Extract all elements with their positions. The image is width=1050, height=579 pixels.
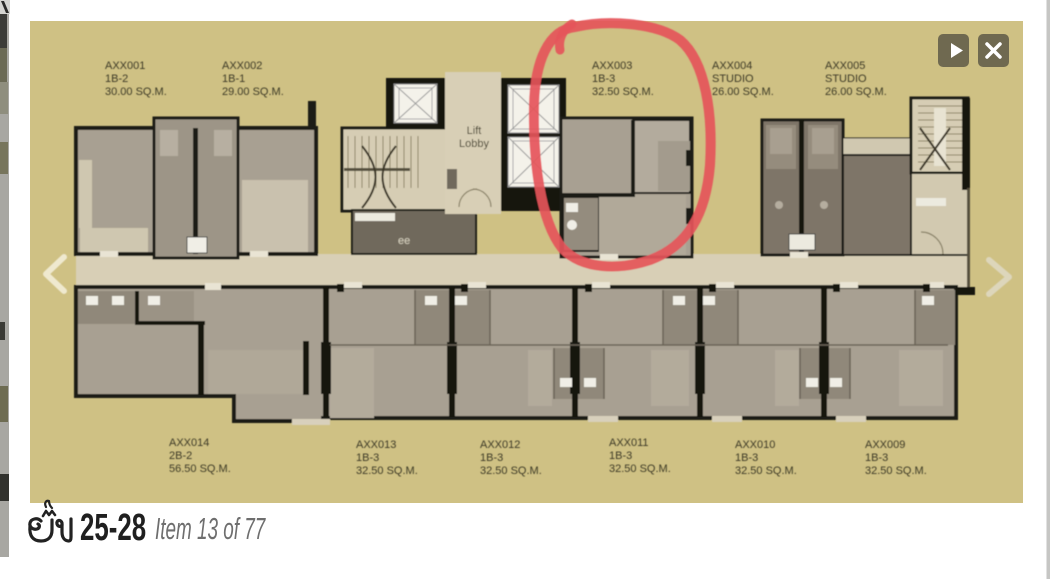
svg-text:25-28: 25-28 bbox=[80, 506, 146, 548]
svg-text:AXX005: AXX005 bbox=[825, 60, 865, 72]
svg-text:AXX002: AXX002 bbox=[222, 60, 262, 72]
svg-text:29.00 SQ.M.: 29.00 SQ.M. bbox=[222, 86, 284, 98]
svg-text:32.50 SQ.M.: 32.50 SQ.M. bbox=[592, 86, 654, 98]
svg-text:AXX009: AXX009 bbox=[865, 439, 905, 451]
svg-text:32.50 SQ.M.: 32.50 SQ.M. bbox=[865, 465, 927, 477]
svg-text:Lift: Lift bbox=[467, 125, 482, 137]
svg-text:1B-3: 1B-3 bbox=[356, 452, 379, 464]
svg-text:1B-1: 1B-1 bbox=[222, 73, 245, 85]
svg-text:30.00 SQ.M.: 30.00 SQ.M. bbox=[105, 86, 167, 98]
svg-text:AXX001: AXX001 bbox=[105, 60, 145, 72]
svg-text:AXX003: AXX003 bbox=[592, 60, 632, 72]
svg-text:AXX012: AXX012 bbox=[480, 439, 520, 451]
svg-text:1B-3: 1B-3 bbox=[592, 73, 615, 85]
svg-text:AXX014: AXX014 bbox=[169, 437, 209, 449]
svg-text:1B-3: 1B-3 bbox=[609, 450, 632, 462]
svg-text:32.50 SQ.M.: 32.50 SQ.M. bbox=[735, 465, 797, 477]
svg-text:STUDIO: STUDIO bbox=[825, 73, 867, 85]
svg-text:56.50 SQ.M.: 56.50 SQ.M. bbox=[169, 463, 231, 475]
svg-text:32.50 SQ.M.: 32.50 SQ.M. bbox=[480, 465, 542, 477]
svg-text:26.00 SQ.M.: 26.00 SQ.M. bbox=[825, 86, 887, 98]
svg-text:1B-3: 1B-3 bbox=[735, 452, 758, 464]
svg-text:26.00 SQ.M.: 26.00 SQ.M. bbox=[712, 86, 774, 98]
svg-text:1B-3: 1B-3 bbox=[865, 452, 888, 464]
svg-text:AXX013: AXX013 bbox=[356, 439, 396, 451]
svg-text:STUDIO: STUDIO bbox=[712, 73, 754, 85]
svg-text:32.50 SQ.M.: 32.50 SQ.M. bbox=[609, 463, 671, 475]
svg-text:Item 13 of 77: Item 13 of 77 bbox=[155, 513, 266, 547]
svg-text:32.50 SQ.M.: 32.50 SQ.M. bbox=[356, 465, 418, 477]
svg-text:AXX010: AXX010 bbox=[735, 439, 775, 451]
svg-text:Lobby: Lobby bbox=[459, 138, 489, 150]
svg-text:AXX004: AXX004 bbox=[712, 60, 752, 72]
svg-text:1B-3: 1B-3 bbox=[480, 452, 503, 464]
svg-text:AXX011: AXX011 bbox=[609, 437, 649, 449]
svg-text:1B-2: 1B-2 bbox=[105, 73, 128, 85]
svg-text:ee: ee bbox=[398, 235, 410, 247]
svg-text:2B-2: 2B-2 bbox=[169, 450, 192, 462]
